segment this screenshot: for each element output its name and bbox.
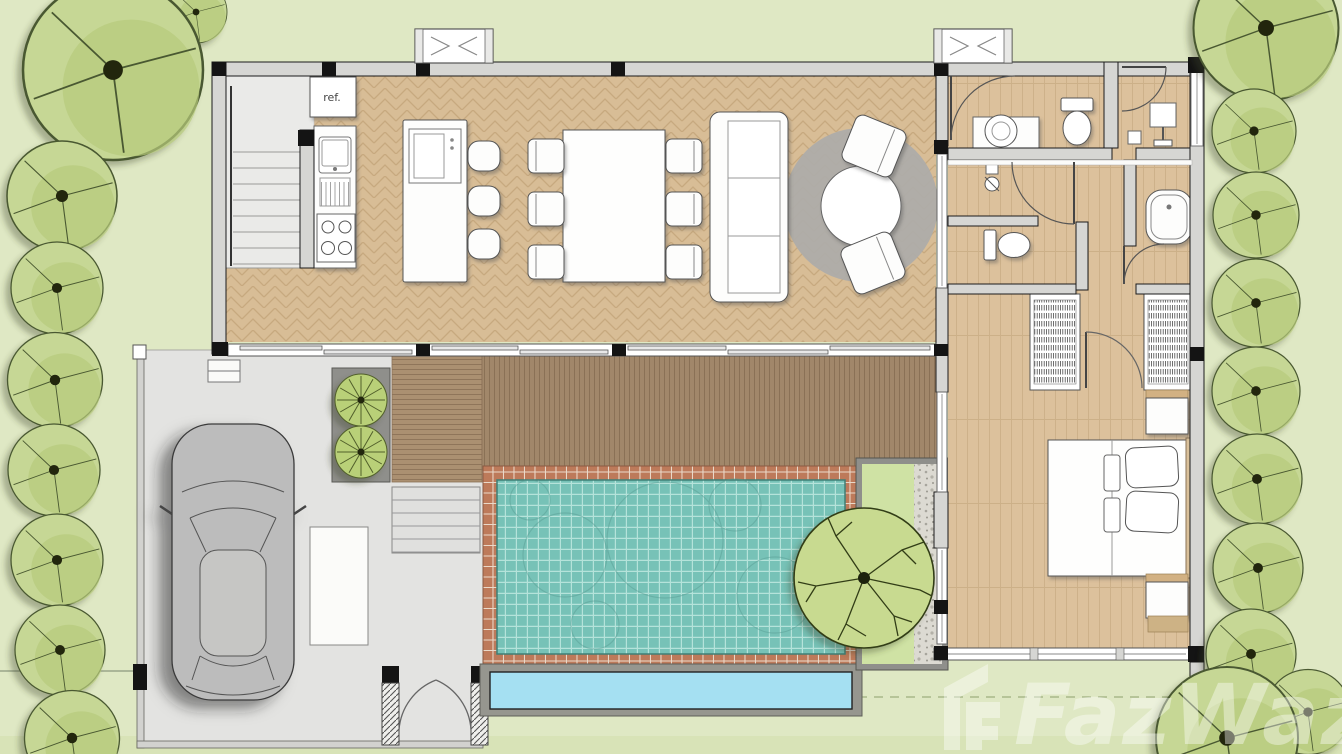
entry-step [208, 360, 240, 371]
watermark-text: FazWaz [1014, 666, 1342, 754]
stair-kitchen-wall [300, 130, 314, 268]
sliding-door-wall [228, 344, 936, 356]
refrigerator-label: ref. [323, 91, 341, 104]
lap-pool-water [490, 672, 852, 709]
bush [335, 426, 387, 478]
bath-partition-wall [1104, 62, 1118, 148]
bathtub-drain [1167, 205, 1172, 210]
tree [11, 514, 103, 606]
bathroom-right [1146, 190, 1192, 244]
bedroom-left-wall [934, 492, 948, 548]
tree [11, 242, 103, 334]
bush [335, 374, 387, 426]
courtyard-tree [794, 508, 934, 648]
tree [23, 0, 203, 160]
roof-vent [934, 29, 1012, 63]
deck-steps [392, 487, 480, 553]
bathtub [1146, 190, 1192, 244]
tree [1212, 347, 1300, 435]
drying-rack [320, 178, 350, 206]
tree [1212, 89, 1296, 173]
shower-partition [948, 216, 1038, 226]
dining-table [563, 130, 665, 282]
tree [7, 141, 117, 251]
hall-floor [224, 268, 314, 342]
bedroom-window-wall [934, 648, 1204, 660]
fence-post [133, 345, 146, 359]
roof-vent [415, 29, 493, 63]
bath-hall-wall [1124, 160, 1136, 246]
bath-hall-wall [1076, 222, 1088, 290]
left-exterior-wall [212, 62, 226, 354]
wall-sink [1150, 103, 1176, 127]
garage-pad [310, 527, 368, 645]
right-exterior-wall [1190, 62, 1204, 662]
sink-faucet [333, 167, 337, 171]
nightstand [1146, 398, 1188, 434]
bottom-boundary-wall [137, 741, 483, 748]
toilet [984, 230, 1030, 260]
sofa-cushions [728, 121, 780, 293]
tree [15, 605, 105, 695]
bar-stools [468, 141, 500, 259]
tree [8, 424, 100, 516]
pool-deck [482, 356, 942, 470]
tree [1212, 434, 1302, 524]
gate-jamb [382, 683, 399, 745]
tree [1213, 523, 1303, 613]
floor-plan-image: ref. [0, 0, 1342, 754]
car [160, 424, 306, 700]
top-exterior-wall [212, 62, 1202, 76]
bedroom-left-wall [936, 288, 948, 392]
dining-area [528, 130, 702, 282]
nightstand [1146, 582, 1188, 618]
tree [1212, 259, 1300, 347]
entry-porch-deck [392, 356, 482, 482]
floor-drain [1128, 131, 1141, 144]
toilet [1061, 98, 1093, 145]
tree [1213, 172, 1299, 258]
gate-post [133, 664, 147, 690]
stove [317, 214, 355, 262]
island-appliance [409, 129, 461, 183]
gate-jamb-cap [382, 666, 399, 683]
tree [7, 333, 102, 428]
bench [1148, 616, 1188, 632]
hall-wall [948, 284, 1076, 294]
floor-plan-svg: ref. [0, 0, 1342, 754]
bath-mid-wall [948, 148, 1112, 160]
round-basin [985, 115, 1017, 147]
car-roof [200, 550, 266, 656]
entry-step [208, 371, 240, 382]
